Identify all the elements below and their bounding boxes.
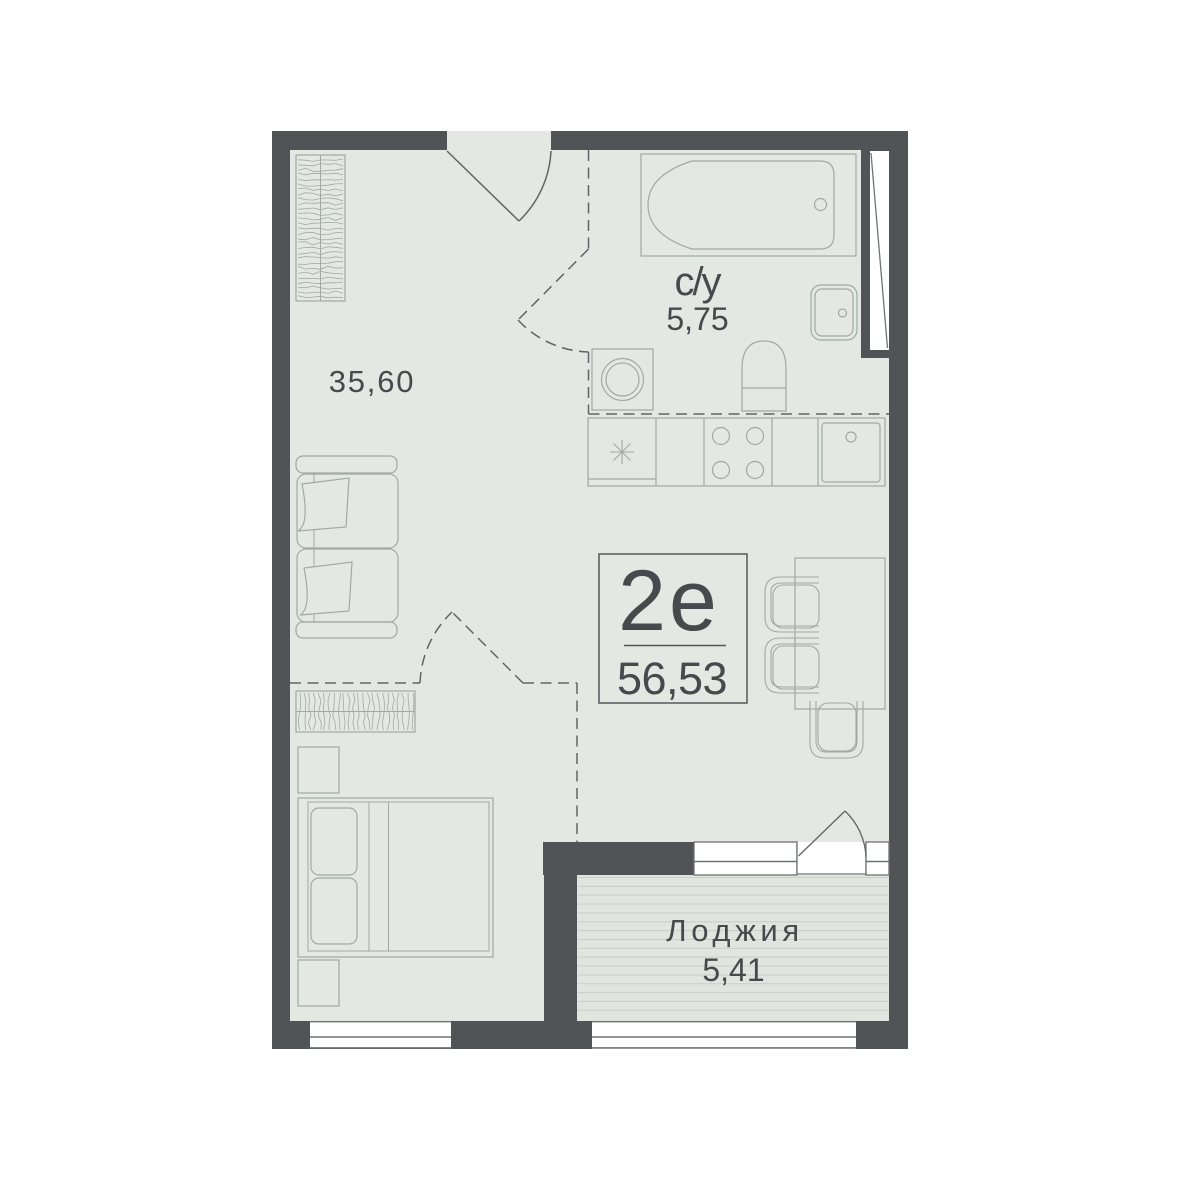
svg-text:с/у: с/у — [674, 260, 721, 304]
svg-text:56,53: 56,53 — [617, 653, 727, 704]
svg-text:35,60: 35,60 — [329, 364, 416, 399]
svg-text:5,41: 5,41 — [702, 952, 764, 988]
svg-text:5,75: 5,75 — [666, 301, 728, 337]
svg-text:Лоджия: Лоджия — [666, 913, 803, 948]
svg-text:2е: 2е — [618, 553, 720, 649]
